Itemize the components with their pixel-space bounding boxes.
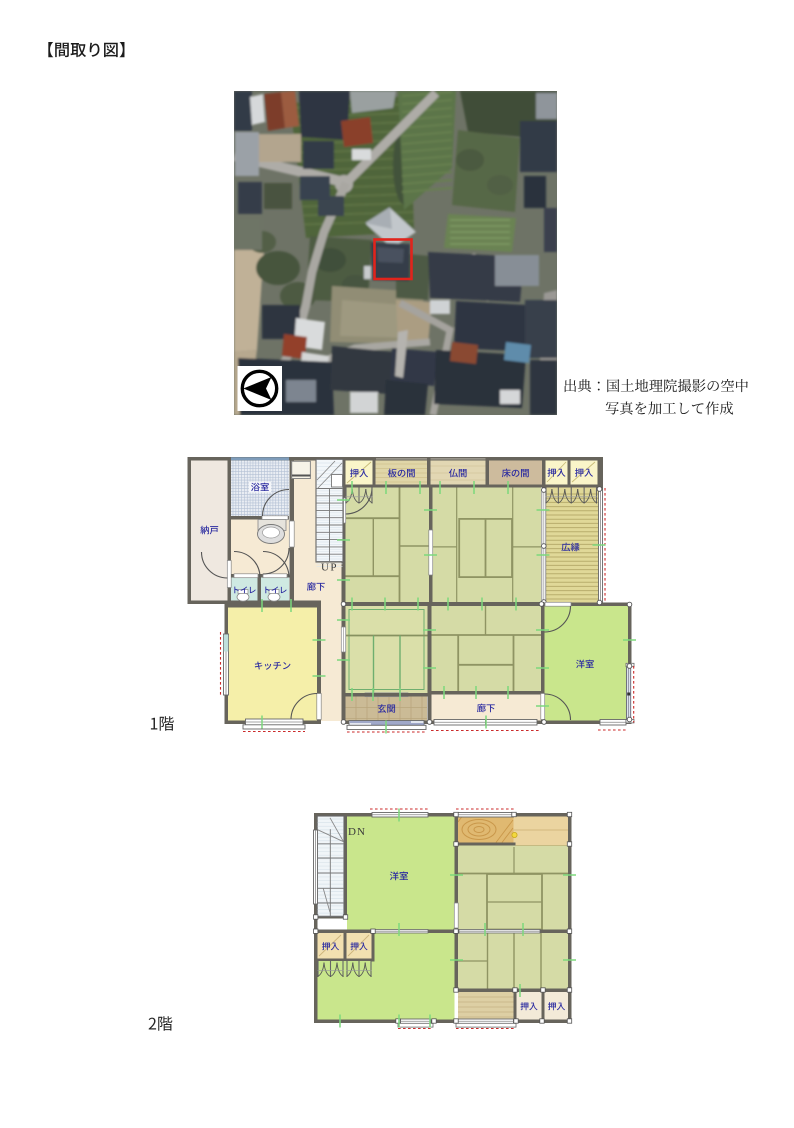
svg-text:UP: UP: [321, 562, 338, 574]
svg-text:DN: DN: [348, 826, 366, 838]
